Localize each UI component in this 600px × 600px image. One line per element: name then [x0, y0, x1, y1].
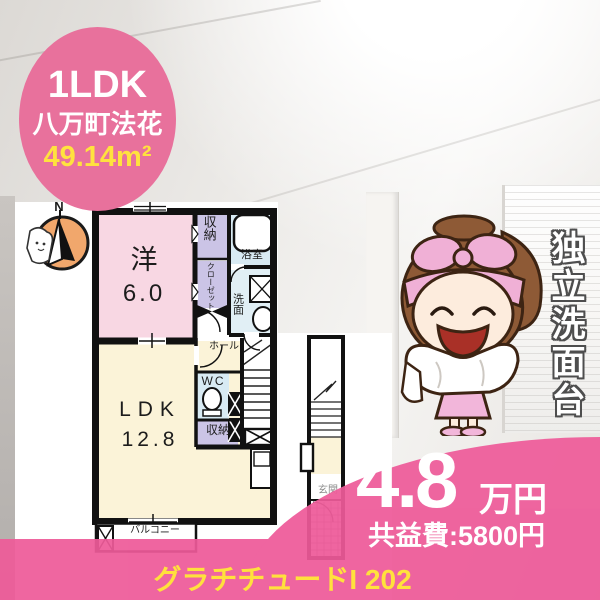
- storage-mid-label: 収納: [197, 424, 239, 437]
- badge-location: 八万町法花: [32, 111, 162, 137]
- closet-label: クローゼット: [206, 262, 214, 308]
- room-ldk-size: 12.8: [98, 429, 202, 451]
- external-stairs: [301, 337, 343, 558]
- washroom-label: 洗面: [231, 293, 243, 329]
- photo-left-edge: [0, 196, 15, 600]
- building-name: グラチチュードI 202: [0, 558, 565, 598]
- property-badge: 1LDK 八万町法花 49.14m²: [19, 27, 176, 211]
- room-ldk-label: LDK: [98, 399, 202, 421]
- room-western-label: 洋: [108, 246, 180, 274]
- storage-top-label: 収納: [202, 215, 216, 261]
- wc-label: WC: [197, 375, 230, 388]
- badge-layout-type: 1LDK: [48, 66, 147, 104]
- property-listing-card: N 洋 6.0 収納 クローゼット 浴室 洗面 ホール WC 収納 LDK 12…: [0, 0, 600, 600]
- bath-label: 浴室: [229, 250, 275, 262]
- mascot-girl: [392, 214, 548, 436]
- room-western-size: 6.0: [108, 281, 180, 306]
- entrance-label: 玄関: [312, 486, 344, 497]
- room-western-fill: [95, 211, 195, 341]
- bathtub: [234, 215, 272, 251]
- toilet: [203, 388, 221, 416]
- critter-icon: [27, 228, 52, 264]
- floor-plan-drawing: [15, 202, 392, 600]
- feature-vertical-text: 独立洗面台: [548, 230, 582, 420]
- rent-amount: 4.8: [356, 441, 455, 519]
- mascot-slipper-right: [461, 427, 485, 436]
- hall-label: ホール: [209, 342, 239, 353]
- balcony-label: バルコニー: [118, 526, 192, 537]
- badge-area: 49.14m²: [43, 143, 151, 172]
- common-fee: 共益費:5800円: [368, 514, 545, 553]
- mascot-bow-knot: [454, 249, 472, 267]
